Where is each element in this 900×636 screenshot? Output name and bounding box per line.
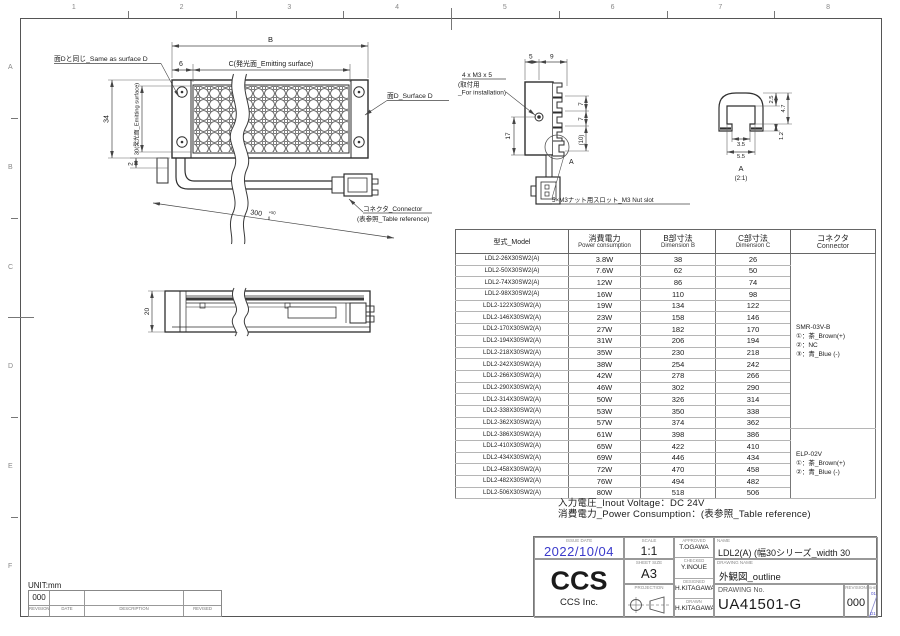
cell-model: LDL2-506X30SW2(A) [456, 487, 569, 499]
dim-1-2-label: 1.2 [779, 132, 785, 140]
cell-b: 398 [641, 429, 716, 441]
cell-model: LDL2-266X30SW2(A) [456, 370, 569, 382]
cell-c: 386 [716, 429, 791, 441]
revision-value: 000 [845, 597, 867, 609]
note-power: 消費電力_Power Consumption：(表参照_Table refere… [558, 510, 811, 521]
dim-17-label: 17 [505, 132, 512, 140]
cell-power: 38W [569, 359, 641, 371]
spec-table-header-row: 型式_Model 消費電力 Power consumption B部寸法 Dim… [456, 230, 876, 254]
revision-cell: REVISION 000 [844, 584, 868, 618]
dim-7b-label: 7 [578, 117, 585, 121]
cell-b: 86 [641, 277, 716, 289]
cell-power: 23W [569, 312, 641, 324]
approved-value: T.OGAWA [675, 544, 713, 552]
cell-model: LDL2-218X30SW2(A) [456, 347, 569, 359]
detail-a-scale: (2:1) [735, 175, 748, 182]
cell-c: 434 [716, 452, 791, 464]
cell-b: 62 [641, 265, 716, 277]
cell-power: 61W [569, 429, 641, 441]
title-block: ISSUE DATE 2022/10/04 CCS CCS Inc. SCALE… [533, 536, 877, 617]
cell-model: LDL2-26X30SW2(A) [456, 254, 569, 266]
cell-power: 35W [569, 347, 641, 359]
connector-line: ①：茶_Brown(+) [796, 332, 875, 341]
scale-cell: SCALE 1:1 [624, 537, 674, 559]
cell-model: LDL2-242X30SW2(A) [456, 359, 569, 371]
cell-model: LDL2-362X30SW2(A) [456, 417, 569, 429]
cable [176, 158, 332, 189]
cell-model: LDL2-170X30SW2(A) [456, 324, 569, 336]
cell-b: 494 [641, 476, 716, 488]
rev-mark-bottom: D1 [870, 611, 876, 616]
cell-power: 31W [569, 335, 641, 347]
connector-note-1: コネクタ_Connector [363, 204, 423, 213]
cell-model: LDL2-290X30SW2(A) [456, 382, 569, 394]
sheet-revision-cell: SHEET 01 D1 [868, 584, 878, 618]
cell-power: 46W [569, 382, 641, 394]
approved-pair: APPROVED T.OGAWA [675, 538, 713, 558]
checked-value: Y.INOUE [675, 564, 713, 572]
dim-20-label: 20 [144, 308, 151, 316]
checked-pair: CHECKED Y.INOUE [675, 558, 713, 578]
screw-note-3: _For installation) [457, 90, 506, 97]
connector-note-2: (表参照_Table reference) [357, 214, 429, 223]
cell-b: 230 [641, 347, 716, 359]
logo-cell: CCS CCS Inc. [534, 559, 624, 618]
unit-label: UNIT:mm [28, 581, 61, 590]
issue-date-value: 2022/10/04 [535, 544, 623, 559]
revision-strip-h3: REVISED [183, 605, 221, 616]
cell-power: 12W [569, 277, 641, 289]
sheet-size-cell: SHEET SIZE A3 [624, 559, 674, 584]
cell-c: 218 [716, 347, 791, 359]
cell-c: 170 [716, 324, 791, 336]
cell-b: 422 [641, 441, 716, 453]
cell-c: 506 [716, 487, 791, 499]
cable-bracket [157, 158, 168, 183]
cell-model: LDL2-122X30SW2(A) [456, 300, 569, 312]
cell-c: 50 [716, 265, 791, 277]
connector-line: ③：青_Blue (-) [796, 350, 875, 359]
notes: 入力電圧_Inout Voltage：DC 24V 消費電力_Power Con… [558, 499, 811, 520]
header-model: 型式_Model [456, 230, 569, 254]
dim-4-7-label: 4.7 [781, 104, 787, 112]
cell-c: 98 [716, 289, 791, 301]
drawn-pair: DRAWN H.KITAGAWA [675, 599, 713, 618]
cell-c: 146 [716, 312, 791, 324]
cell-model: LDL2-434X30SW2(A) [456, 452, 569, 464]
cell-b: 350 [641, 405, 716, 417]
third-angle-projection-icon [626, 593, 672, 617]
revision-strip: 000 REVISION DATE DESCRIPTION REVISED [28, 590, 222, 617]
header-power: 消費電力 Power consumption [569, 230, 641, 254]
cell-c: 458 [716, 464, 791, 476]
end-dims: 5 9 17 7 7 (10) 4 x M3 x 5 (取付用 _For ins… [457, 54, 690, 205]
projection-cell: PROJECTION [624, 584, 674, 618]
cell-b: 326 [641, 394, 716, 406]
cell-power: 65W [569, 441, 641, 453]
ccs-logo: CCS [535, 567, 623, 596]
cell-power: 69W [569, 452, 641, 464]
cell-c: 362 [716, 417, 791, 429]
nut-slot-note: 5×M3ナット用スロット_M3 Nut slot [552, 196, 654, 204]
cell-power: 27W [569, 324, 641, 336]
cell-power: 19W [569, 300, 641, 312]
header-dimension-b: B部寸法 Dimension B [641, 230, 716, 254]
revision-strip-value: 000 [29, 591, 49, 605]
cell-power: 7.6W [569, 265, 641, 277]
dim-b-label: B [268, 35, 273, 44]
screw-note-1: 4 x M3 x 5 [462, 72, 492, 79]
connector-line: ELP-02V [796, 450, 875, 459]
dim-30-label: 30(発光面_Emitting surface) [133, 83, 141, 156]
cable-connector [332, 174, 378, 196]
cell-b: 206 [641, 335, 716, 347]
product-name-value: LDL2(A) (幅30シリーズ_width 30 series) [715, 544, 877, 559]
connector-elp-cell: ELP-02V①：茶_Brown(+)②：青_Blue (-) [791, 429, 876, 499]
dim-7a-label: 7 [578, 102, 585, 106]
dim-2-5-label: 2.5 [769, 95, 775, 103]
detail-a-mark: A [569, 159, 574, 166]
cell-model: LDL2-386X30SW2(A) [456, 429, 569, 441]
cell-model: LDL2-314X30SW2(A) [456, 394, 569, 406]
company-name: CCS Inc. [535, 597, 623, 608]
cell-model: LDL2-74X30SW2(A) [456, 277, 569, 289]
cell-c: 26 [716, 254, 791, 266]
nut-slots [553, 83, 564, 156]
cell-b: 158 [641, 312, 716, 324]
signatures-cell: APPROVED T.OGAWA CHECKED Y.INOUE DESIGNE… [674, 537, 714, 618]
cell-c: 266 [716, 370, 791, 382]
end-view [525, 82, 569, 204]
cell-c: 74 [716, 277, 791, 289]
dim-5-5-label: 5.5 [737, 154, 745, 160]
drawing-name-cell: DRAWING NAME 外観図_outline [714, 559, 878, 584]
cell-c: 194 [716, 335, 791, 347]
connector-line: ②：青_Blue (-) [796, 468, 875, 477]
cell-power: 3.8W [569, 254, 641, 266]
cell-model: LDL2-50X30SW2(A) [456, 265, 569, 277]
drawing-name-value: 外観図_outline [715, 566, 877, 583]
dim-5-label: 5 [529, 54, 533, 61]
cable-length-label: 300 [250, 209, 263, 218]
spec-table-body: LDL2-26X30SW2(A)3.8W3826SMR-03V-B①：茶_Bro… [456, 254, 876, 499]
cell-model: LDL2-458X30SW2(A) [456, 464, 569, 476]
cell-power: 42W [569, 370, 641, 382]
spec-row: LDL2-386X30SW2(A)61W398386ELP-02V①：茶_Bro… [456, 429, 876, 441]
scale-value: 1:1 [625, 544, 673, 558]
name-cell: NAME LDL2(A) (幅30シリーズ_width 30 series) [714, 537, 878, 559]
dim-10-label: (10) [579, 135, 585, 146]
dim-6-label: 6 [179, 61, 183, 68]
dim-c-label: C(発光面_Emitting surface) [229, 59, 314, 68]
cell-power: 76W [569, 476, 641, 488]
cell-model: LDL2-410X30SW2(A) [456, 441, 569, 453]
side-dims: 20 [144, 291, 165, 332]
dim-34-label: 34 [104, 115, 111, 123]
cell-c: 410 [716, 441, 791, 453]
spec-row: LDL2-26X30SW2(A)3.8W3826SMR-03V-B①：茶_Bro… [456, 254, 876, 266]
dim-9-label: 9 [550, 54, 554, 61]
connector-line: ②：NC [796, 341, 875, 350]
cell-model: LDL2-98X30SW2(A) [456, 289, 569, 301]
cell-power: 72W [569, 464, 641, 476]
drawing-number-cell: DRAWING No. UA41501-G [714, 584, 844, 618]
cell-c: 482 [716, 476, 791, 488]
revision-strip-h0: REVISION [29, 605, 49, 616]
cell-b: 278 [641, 370, 716, 382]
cell-b: 374 [641, 417, 716, 429]
cell-c: 314 [716, 394, 791, 406]
rev-mark-top: 01 [871, 591, 876, 596]
front-view [157, 80, 378, 196]
cell-b: 38 [641, 254, 716, 266]
cell-b: 110 [641, 289, 716, 301]
drawing-number-value: UA41501-G [715, 594, 843, 613]
cell-model: LDL2-338X30SW2(A) [456, 405, 569, 417]
sheet-size-value: A3 [625, 566, 673, 581]
designed-value: H.KITAGAWA [675, 585, 713, 593]
revision-strip-h2: DESCRIPTION [84, 605, 183, 616]
cell-c: 338 [716, 405, 791, 417]
cell-b: 134 [641, 300, 716, 312]
side-view [165, 291, 374, 332]
surface-d-label: 面D_Surface D [387, 92, 433, 100]
connector-line: ①：茶_Brown(+) [796, 459, 875, 468]
same-as-d-label: 面Dと同じ_Same as surface D [54, 55, 148, 63]
drawn-value: H.KITAGAWA [675, 605, 713, 613]
cell-power: 50W [569, 394, 641, 406]
connector-line: SMR-03V-B [796, 323, 875, 332]
cell-b: 470 [641, 464, 716, 476]
cell-model: LDL2-194X30SW2(A) [456, 335, 569, 347]
issue-date-cell: ISSUE DATE 2022/10/04 [534, 537, 624, 559]
cell-model: LDL2-482X30SW2(A) [456, 476, 569, 488]
connector-smr-cell: SMR-03V-B①：茶_Brown(+)②：NC③：青_Blue (-) [791, 254, 876, 429]
cell-power: 53W [569, 405, 641, 417]
cell-power: 16W [569, 289, 641, 301]
screw-note-2: (取付用 [458, 80, 480, 89]
cell-c: 242 [716, 359, 791, 371]
cell-c: 290 [716, 382, 791, 394]
cell-b: 302 [641, 382, 716, 394]
note-voltage: 入力電圧_Inout Voltage：DC 24V [558, 499, 811, 510]
cell-b: 182 [641, 324, 716, 336]
dim-3-5-label: 3.5 [737, 142, 745, 148]
cell-b: 446 [641, 452, 716, 464]
revision-strip-h1: DATE [49, 605, 84, 616]
dim-2-label: 2 [128, 162, 135, 166]
led-array [194, 86, 348, 152]
header-connector: コネクタ Connector [791, 230, 876, 254]
spec-table: 型式_Model 消費電力 Power consumption B部寸法 Dim… [455, 229, 875, 499]
detail-a-label: A [738, 164, 743, 173]
cell-model: LDL2-146X30SW2(A) [456, 312, 569, 324]
header-dimension-c: C部寸法 Dimension C [716, 230, 791, 254]
cell-power: 57W [569, 417, 641, 429]
designed-pair: DESIGNED H.KITAGAWA [675, 579, 713, 599]
cell-c: 122 [716, 300, 791, 312]
detail-a-view [719, 93, 763, 131]
cell-b: 254 [641, 359, 716, 371]
